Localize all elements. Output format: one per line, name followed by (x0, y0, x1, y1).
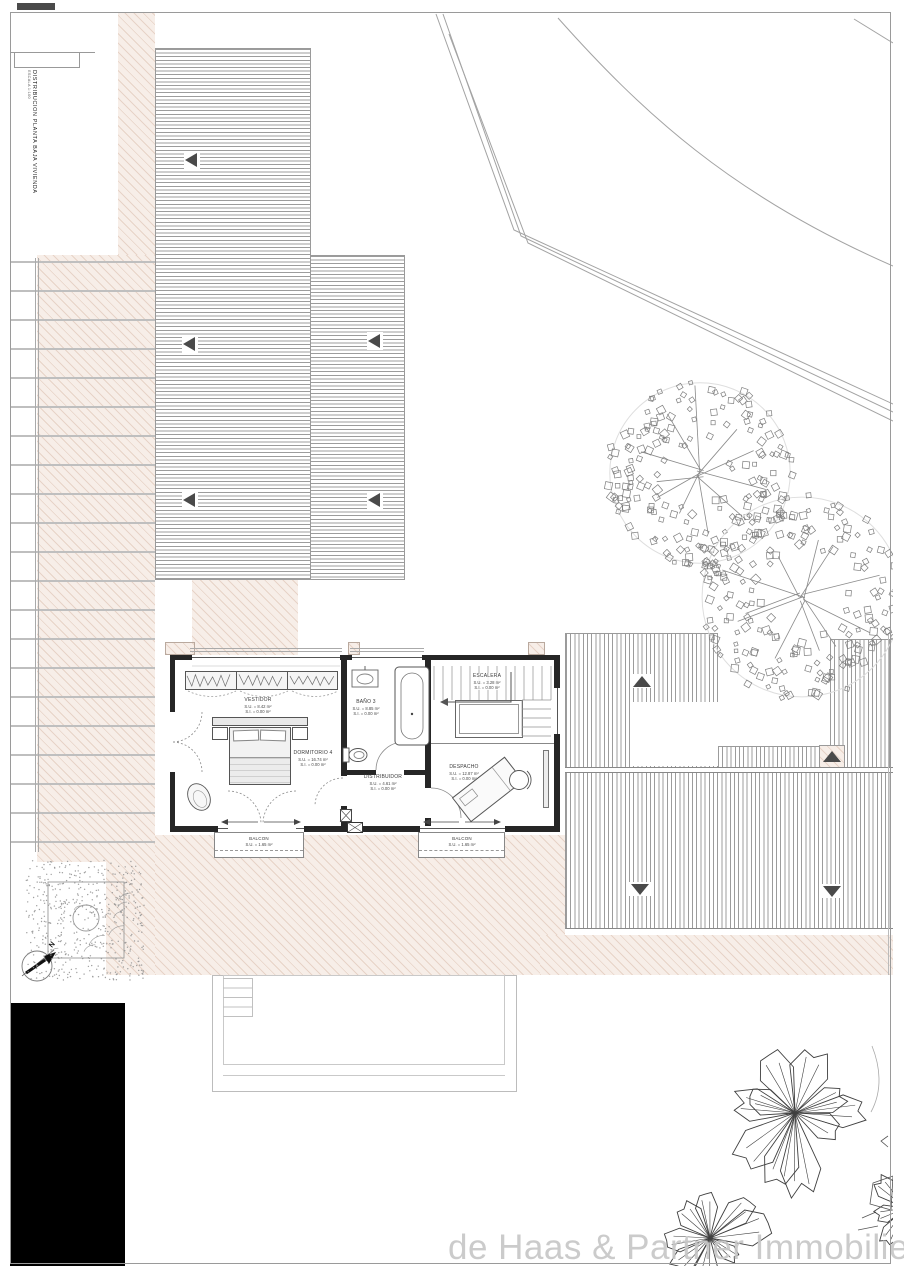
terrace-hatch-connector (192, 580, 298, 655)
stair-landing-inner (459, 704, 519, 734)
wardrobe-divider (236, 671, 237, 690)
door-slit-bottom-wall (228, 826, 296, 832)
window-sill (190, 648, 342, 652)
terrace-edge-line (35, 258, 39, 852)
room-label-balcon-left: BALCON S.U. = 1.65 m² (245, 836, 272, 847)
wardrobe (185, 671, 338, 690)
window-glass-line (352, 657, 422, 658)
wall-bath-distribuidor-b (404, 770, 425, 775)
window-sill (350, 648, 424, 652)
bed-headboard (212, 717, 308, 726)
roof-left-annex (310, 255, 405, 580)
wall-pier-hatch (528, 642, 545, 655)
wall-distribuidor-despacho (425, 745, 431, 788)
room-label-balcon-right: BALCON S.U. = 1.65 m² (448, 836, 475, 847)
garden-sketch-fragments (858, 1046, 893, 1230)
sheet-corner-logo (17, 3, 55, 10)
wall-distribuidor-despacho-stub (425, 818, 431, 826)
room-label-dormitorio4: DORMITORIO 4 S.U. = 16.74 m² S.I. = 0.00… (294, 750, 333, 767)
balcony-dashed-edge (215, 850, 303, 851)
pillow (260, 730, 286, 742)
door-slit-left-wall (170, 712, 175, 772)
mullion-column-box (347, 822, 363, 833)
watermark: de Haas & Partner Immobilien (448, 1228, 904, 1268)
roof-chimney-tab (819, 745, 845, 768)
terrace-hatch-bottom-right (540, 935, 893, 975)
nightstand-left (212, 727, 228, 740)
room-label-distribuidor: DISTRIBUIDOR S.U. = 4.61 m² S.I. = 0.00 … (364, 774, 402, 791)
duct-shaft-box (340, 809, 352, 822)
stairs-despacho-divider (431, 743, 554, 744)
roof-right-cutout (630, 702, 718, 766)
floor-plan-sheet: DISTRIBUCION PLANTA BAJA VIVIENDA ESCALA… (0, 0, 904, 1280)
garden-white-patch (11, 862, 106, 979)
roof-right-mid (718, 746, 830, 767)
wall-bedroom-bath (341, 660, 347, 776)
roof-left-column (155, 48, 311, 580)
room-label-vestidor: VESTIDOR S.U. = 8.42 m² S.I. = 0.00 m² (244, 697, 271, 714)
lower-terrace-stairs (223, 978, 253, 1017)
nightstand-right (292, 727, 308, 740)
roof-right-edge-line (888, 633, 889, 975)
terrace-hatch-top-left (118, 13, 155, 255)
pillow (233, 730, 259, 742)
room-label-escalera: ESCALERA S.U. = 3.28 m² S.I. = 0.00 m² (472, 673, 502, 690)
wall-bath-stairs (425, 660, 431, 745)
window-glass-line (557, 688, 558, 734)
despacho-shelf (543, 750, 549, 808)
roof-right-lower (565, 773, 893, 929)
drawing-title: DISTRIBUCION PLANTA BAJA VIVIENDA (31, 70, 37, 194)
balcony-dashed-edge (419, 850, 504, 851)
room-label-despacho: DESPACHO S.U. = 12.87 m² S.I. = 0.00 m² (449, 764, 478, 781)
title-block-box (14, 52, 80, 68)
window-bottom-right (420, 826, 505, 832)
lower-terrace-inner (223, 975, 505, 1065)
site-boundary-lines (436, 14, 893, 421)
lower-terrace-line (223, 1075, 505, 1076)
title-block-text: DISTRIBUCION PLANTA BAJA VIVIENDA ESCALA… (27, 70, 37, 194)
room-label-bano3: BAÑO 3 S.U. = 8.85 m² S.I. = 0.00 m² (352, 699, 379, 716)
black-legend-block (10, 1003, 125, 1266)
window-glass-line (192, 657, 340, 658)
bed-blanket (230, 757, 290, 784)
window-glass-line (420, 828, 505, 829)
pergola-beams (10, 261, 155, 851)
wardrobe-divider (287, 671, 288, 690)
